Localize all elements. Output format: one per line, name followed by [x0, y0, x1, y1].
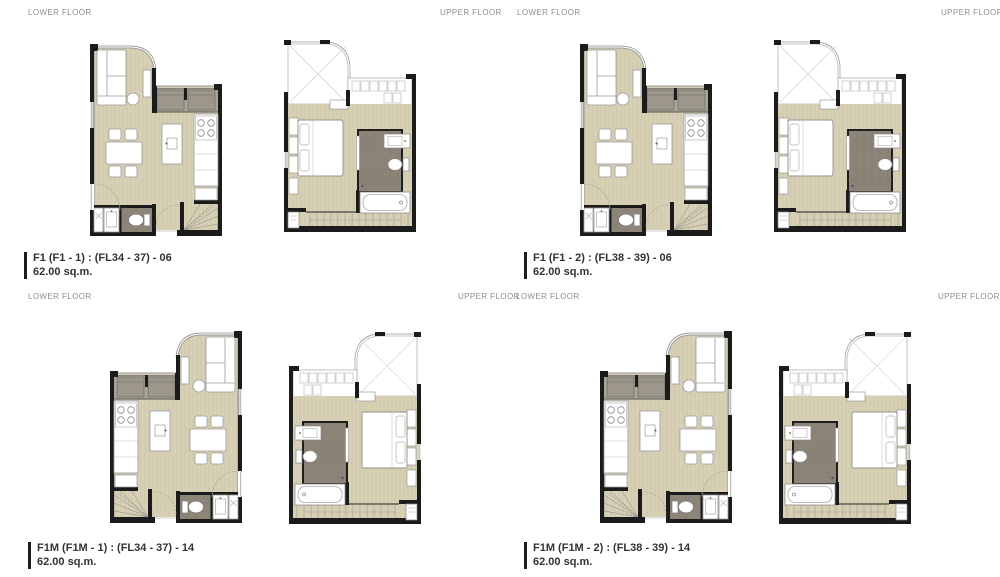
- unit-name: F1 (F1 - 1) : (FL34 - 37) - 06: [33, 252, 172, 266]
- unit-area: 62.00 sq.m.: [533, 556, 690, 570]
- floor-plan-lower: [580, 44, 712, 236]
- floor-plan-upper: [284, 40, 416, 232]
- upper-floor-header: UPPER FLOOR: [941, 8, 1000, 17]
- floor-plan-lower: [110, 331, 242, 523]
- unit-area: 62.00 sq.m.: [37, 556, 194, 570]
- unit-label: F1M (F1M - 1) : (FL34 - 37) - 14 62.00 s…: [28, 542, 194, 569]
- floor-plan-sheet: LOWER FLOOR UPPER FLOOR F1 (F1 - 1) : (F…: [0, 0, 1000, 577]
- lower-floor-header: LOWER FLOOR: [517, 8, 581, 17]
- unit-label: F1 (F1 - 1) : (FL34 - 37) - 06 62.00 sq.…: [24, 252, 172, 279]
- unit-label: F1M (F1M - 2) : (FL38 - 39) - 14 62.00 s…: [524, 542, 690, 569]
- label-bar: [28, 542, 31, 569]
- lower-floor-header: LOWER FLOOR: [28, 292, 92, 301]
- lower-floor-header: LOWER FLOOR: [516, 292, 580, 301]
- label-bar: [524, 252, 527, 279]
- upper-floor-header: UPPER FLOOR: [440, 8, 502, 17]
- upper-floor-header: UPPER FLOOR: [458, 292, 520, 301]
- unit-name: F1M (F1M - 1) : (FL34 - 37) - 14: [37, 542, 194, 556]
- lower-floor-header: LOWER FLOOR: [28, 8, 92, 17]
- unit-name: F1M (F1M - 2) : (FL38 - 39) - 14: [533, 542, 690, 556]
- label-bar: [524, 542, 527, 569]
- floor-plan-upper: [774, 40, 906, 232]
- floor-plan-upper: [779, 332, 911, 524]
- floor-plan-upper: [289, 332, 421, 524]
- floor-plan-lower: [90, 44, 222, 236]
- unit-name: F1 (F1 - 2) : (FL38 - 39) - 06: [533, 252, 672, 266]
- label-bar: [24, 252, 27, 279]
- floor-plan-lower: [600, 331, 732, 523]
- unit-area: 62.00 sq.m.: [33, 266, 172, 280]
- unit-label: F1 (F1 - 2) : (FL38 - 39) - 06 62.00 sq.…: [524, 252, 672, 279]
- upper-floor-header: UPPER FLOOR: [938, 292, 1000, 301]
- unit-area: 62.00 sq.m.: [533, 266, 672, 280]
